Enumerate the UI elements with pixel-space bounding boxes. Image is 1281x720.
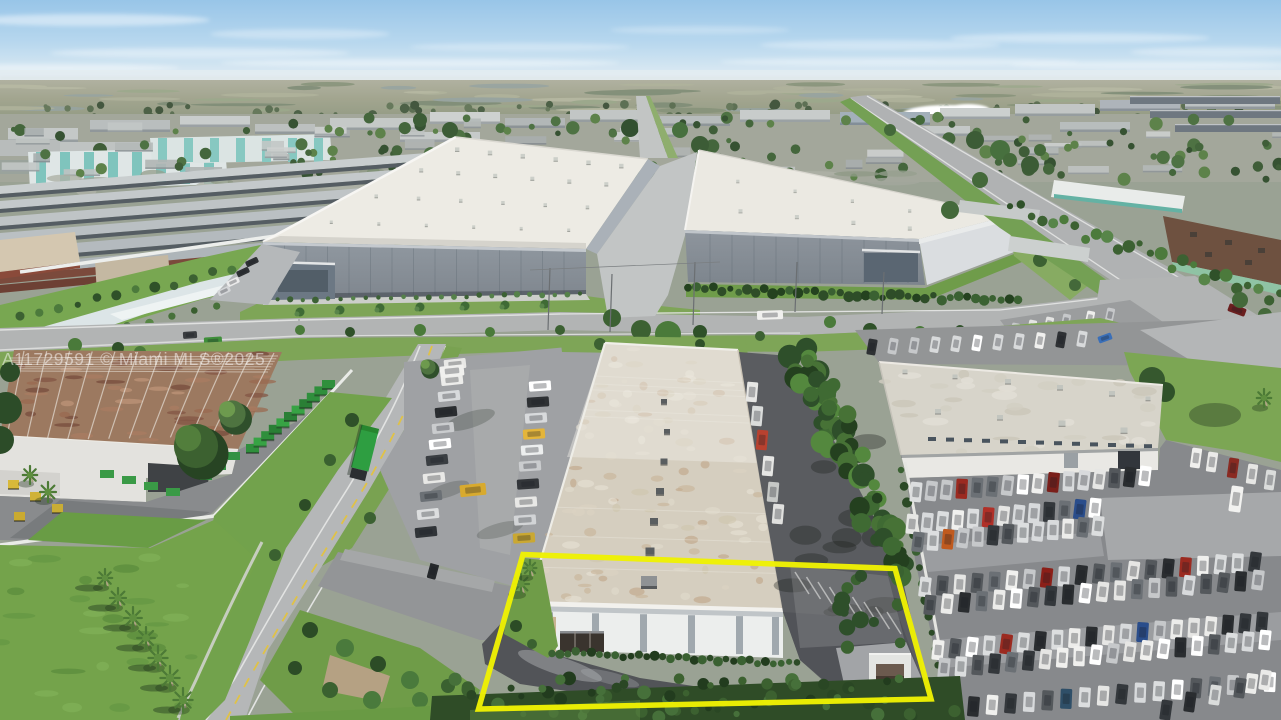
svg-text:A11729591 © Miami MLS®2025: A11729591 © Miami MLS®2025 xyxy=(2,349,265,369)
